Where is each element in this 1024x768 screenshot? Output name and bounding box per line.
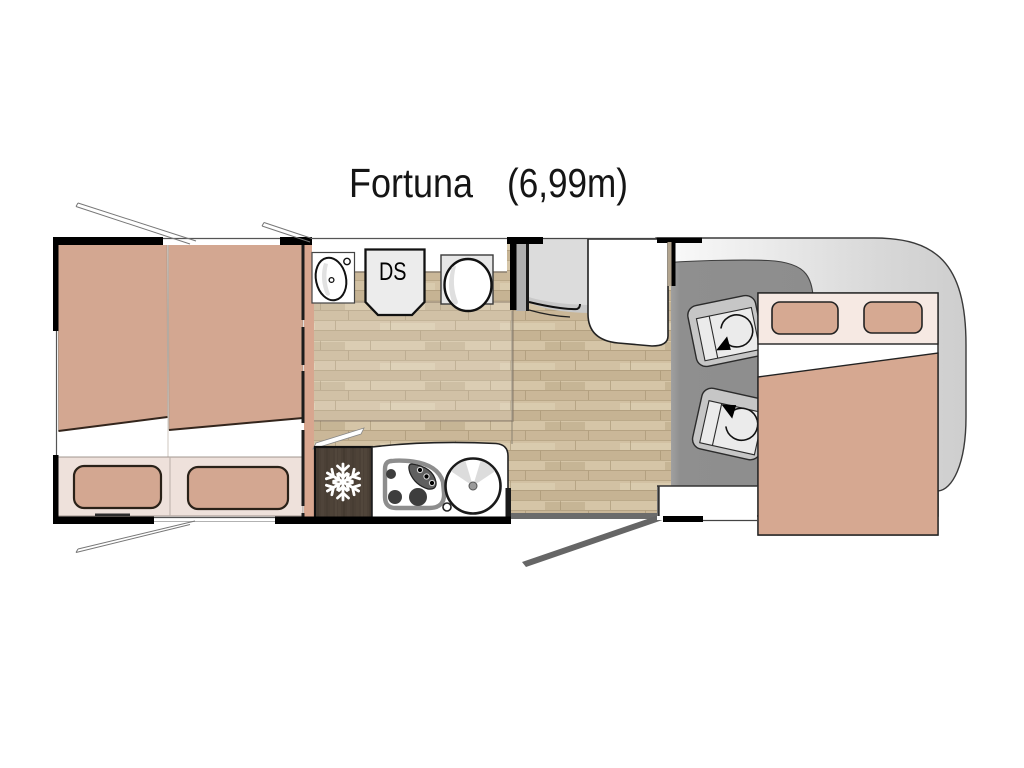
svg-text:DS: DS [379, 258, 407, 286]
svg-text:(6,99m): (6,99m) [507, 160, 628, 206]
svg-text:Fortuna: Fortuna [349, 160, 473, 206]
